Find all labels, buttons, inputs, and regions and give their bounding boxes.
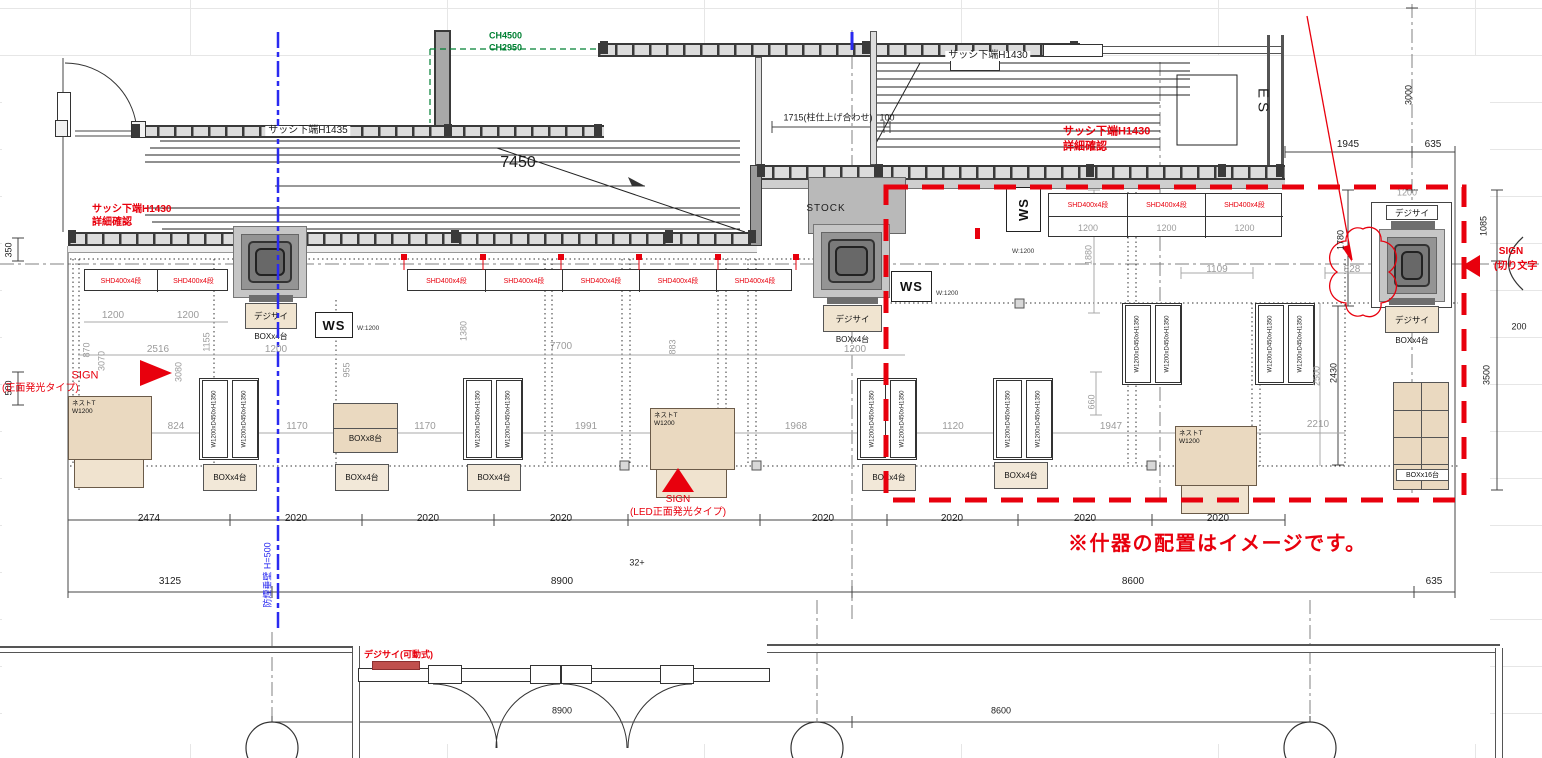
red-annotation: サッシ下端H1430 — [92, 205, 171, 215]
red-annotation: 詳細確認 — [1063, 142, 1107, 153]
dim-label: 1991 — [575, 422, 597, 432]
dim-label: 1170 — [414, 422, 436, 432]
dim-label: 2020 — [941, 514, 963, 524]
note-annotation: CH2950 — [489, 44, 522, 53]
dim-label: 3080 — [175, 362, 184, 382]
dim-label: 1170 — [286, 422, 308, 432]
dim-label: 3125 — [159, 577, 181, 587]
dim-label: 350 — [5, 242, 14, 257]
dim-label: 1120 — [942, 422, 964, 432]
dim-label: 1200 — [265, 345, 287, 355]
dim-label: 1945 — [1337, 140, 1359, 150]
dim-label: 955 — [343, 362, 352, 377]
dim-label: 1085 — [1480, 216, 1489, 236]
dim-label: 3500 — [1483, 365, 1492, 385]
dim-label: 2020 — [812, 514, 834, 524]
label-layer: サッシ下端H1435サッシ下端H143074501715(柱仕上げ合わせ)100… — [0, 0, 1542, 758]
dim-label: 8600 — [1122, 577, 1144, 587]
red-annotation: (切り文字 — [1494, 262, 1537, 272]
dim-label: 1200 — [844, 345, 866, 355]
dim-label: 2020 — [417, 514, 439, 524]
dim-label: 2516 — [147, 345, 169, 355]
dim-label: 2430 — [1330, 363, 1339, 383]
dim-label: 2020 — [1207, 514, 1229, 524]
dim-label: 8600 — [991, 707, 1011, 716]
dim-label: サッシ下端H1430 — [945, 51, 1030, 61]
dim-label: 870 — [83, 342, 92, 357]
red-annotation: (正面発光タイプ) — [2, 384, 79, 394]
red-annotation: SIGN — [72, 371, 99, 382]
dim-label: 1780 — [1337, 230, 1346, 250]
dim-label: ES — [1256, 88, 1271, 116]
dim-label: 1200 — [177, 311, 199, 321]
dim-label: 3070 — [98, 351, 107, 371]
dim-label: 1200 — [102, 311, 124, 321]
note-annotation: CH4500 — [489, 32, 522, 41]
dim-label: 8900 — [551, 577, 573, 587]
dim-label: 1968 — [785, 422, 807, 432]
dim-label: 2020 — [550, 514, 572, 524]
dim-label: 8900 — [552, 707, 572, 716]
red-annotation: SIGN — [666, 495, 690, 505]
dim-label: 828 — [1344, 265, 1361, 275]
dim-label: 1947 — [1100, 422, 1122, 432]
dim-label: 7700 — [550, 342, 572, 352]
dim-label: サッシ下端H1435 — [265, 126, 350, 136]
red-annotation: (LED正面発光タイプ) — [630, 508, 726, 518]
dim-label: 1200 — [1397, 189, 1417, 198]
dim-label: 100 — [879, 114, 894, 123]
dim-label: 2020 — [1074, 514, 1096, 524]
dim-label: 1380 — [460, 321, 469, 341]
dim-label: 883 — [669, 339, 678, 354]
dim-label: 7450 — [500, 155, 536, 171]
dim-label: 3000 — [1405, 85, 1414, 105]
dim-label: 1109 — [1206, 265, 1228, 275]
red-annotation: サッシ下端H1430 — [1063, 127, 1150, 138]
dim-label: 635 — [1426, 577, 1443, 587]
note-annotation: 防煙垂壁 H=500 — [264, 542, 273, 607]
dim-label: STOCK — [806, 204, 845, 214]
red-annotation: SIGN — [1499, 247, 1523, 257]
dim-label: 2210 — [1307, 420, 1329, 430]
dim-label: 2020 — [285, 514, 307, 524]
dim-label: 1880 — [1085, 245, 1094, 265]
dim-label: 32+ — [629, 559, 644, 568]
dim-label: 200 — [1511, 323, 1526, 332]
layout-note: ※什器の配置はイメージです。 — [1068, 527, 1367, 556]
dim-label: 635 — [1425, 140, 1442, 150]
dim-label: 824 — [168, 422, 185, 432]
dim-label: 660 — [1088, 394, 1097, 409]
red-annotation: 詳細確認 — [92, 218, 132, 228]
dim-label: 2500 — [1313, 366, 1322, 386]
red-annotation: デジサイ(可動式) — [364, 651, 433, 660]
dim-label: 2474 — [138, 514, 160, 524]
dim-label: 1715(柱仕上げ合わせ) — [783, 114, 872, 123]
dim-label: 1155 — [203, 332, 212, 351]
